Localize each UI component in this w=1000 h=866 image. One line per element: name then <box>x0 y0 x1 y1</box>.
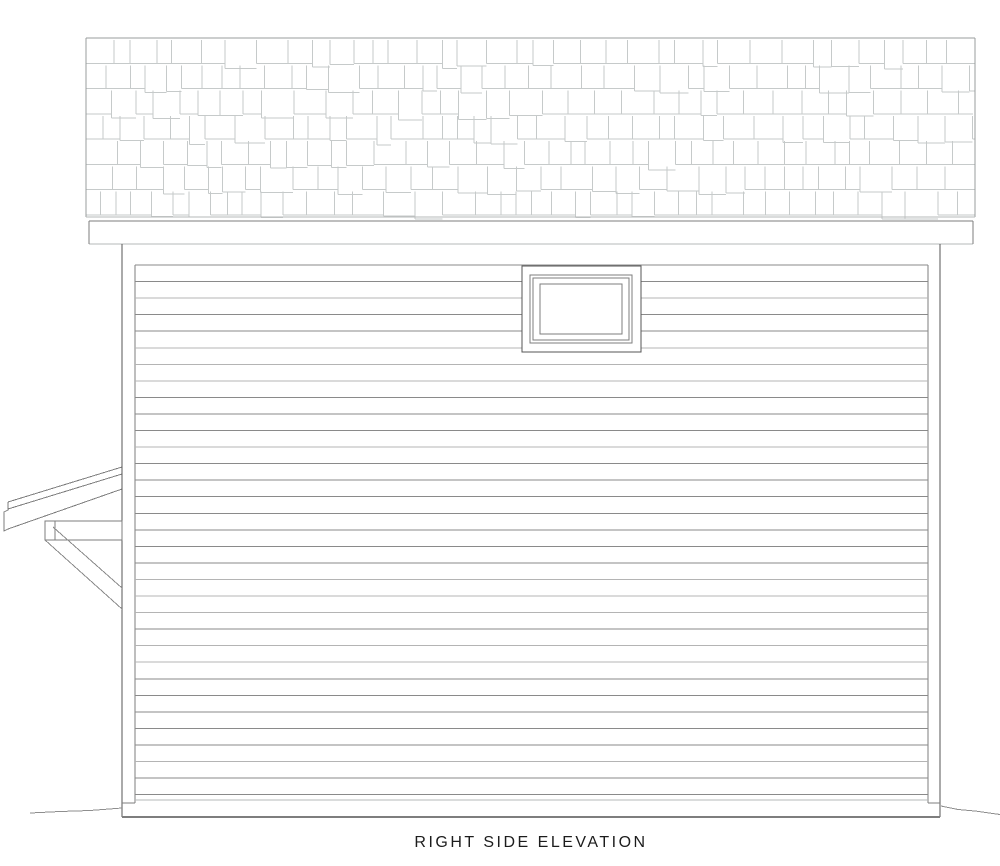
ground-line-right <box>941 806 1000 815</box>
window <box>522 266 641 352</box>
roof-shingles <box>86 40 975 219</box>
elevation-drawing <box>0 0 1000 866</box>
elevation-sheet: RIGHT SIDE ELEVATION <box>0 0 1000 866</box>
roof-fascia <box>89 221 973 244</box>
ground-line-left <box>30 808 122 813</box>
drawing-title: RIGHT SIDE ELEVATION <box>414 834 647 852</box>
awning-structure <box>4 467 122 609</box>
